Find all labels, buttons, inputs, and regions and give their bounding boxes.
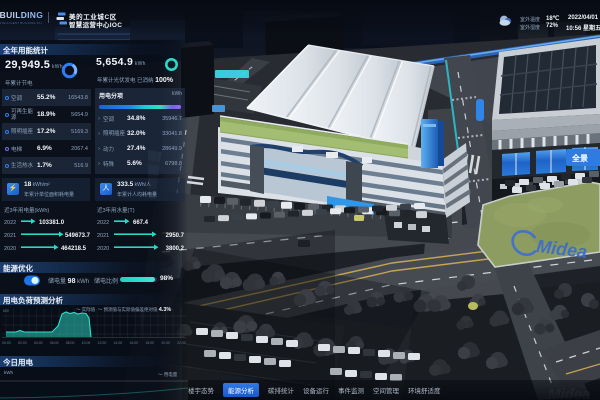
svg-text:549673.7: 549673.7 (65, 233, 91, 239)
svg-text:2021: 2021 (4, 233, 16, 239)
svg-text:2020: 2020 (4, 246, 16, 252)
svg-text:667.4: 667.4 (133, 220, 149, 226)
svg-text:2020: 2020 (97, 246, 109, 252)
svg-text:2022: 2022 (4, 220, 16, 226)
svg-text:2021: 2021 (97, 233, 109, 239)
svg-text:103381.0: 103381.0 (39, 220, 65, 226)
svg-text:2950.7: 2950.7 (166, 233, 185, 239)
svg-text:全景: 全景 (571, 153, 588, 163)
svg-text:3800.2: 3800.2 (166, 246, 185, 252)
svg-text:464218.5: 464218.5 (61, 246, 87, 252)
svg-text:2022: 2022 (97, 220, 109, 226)
